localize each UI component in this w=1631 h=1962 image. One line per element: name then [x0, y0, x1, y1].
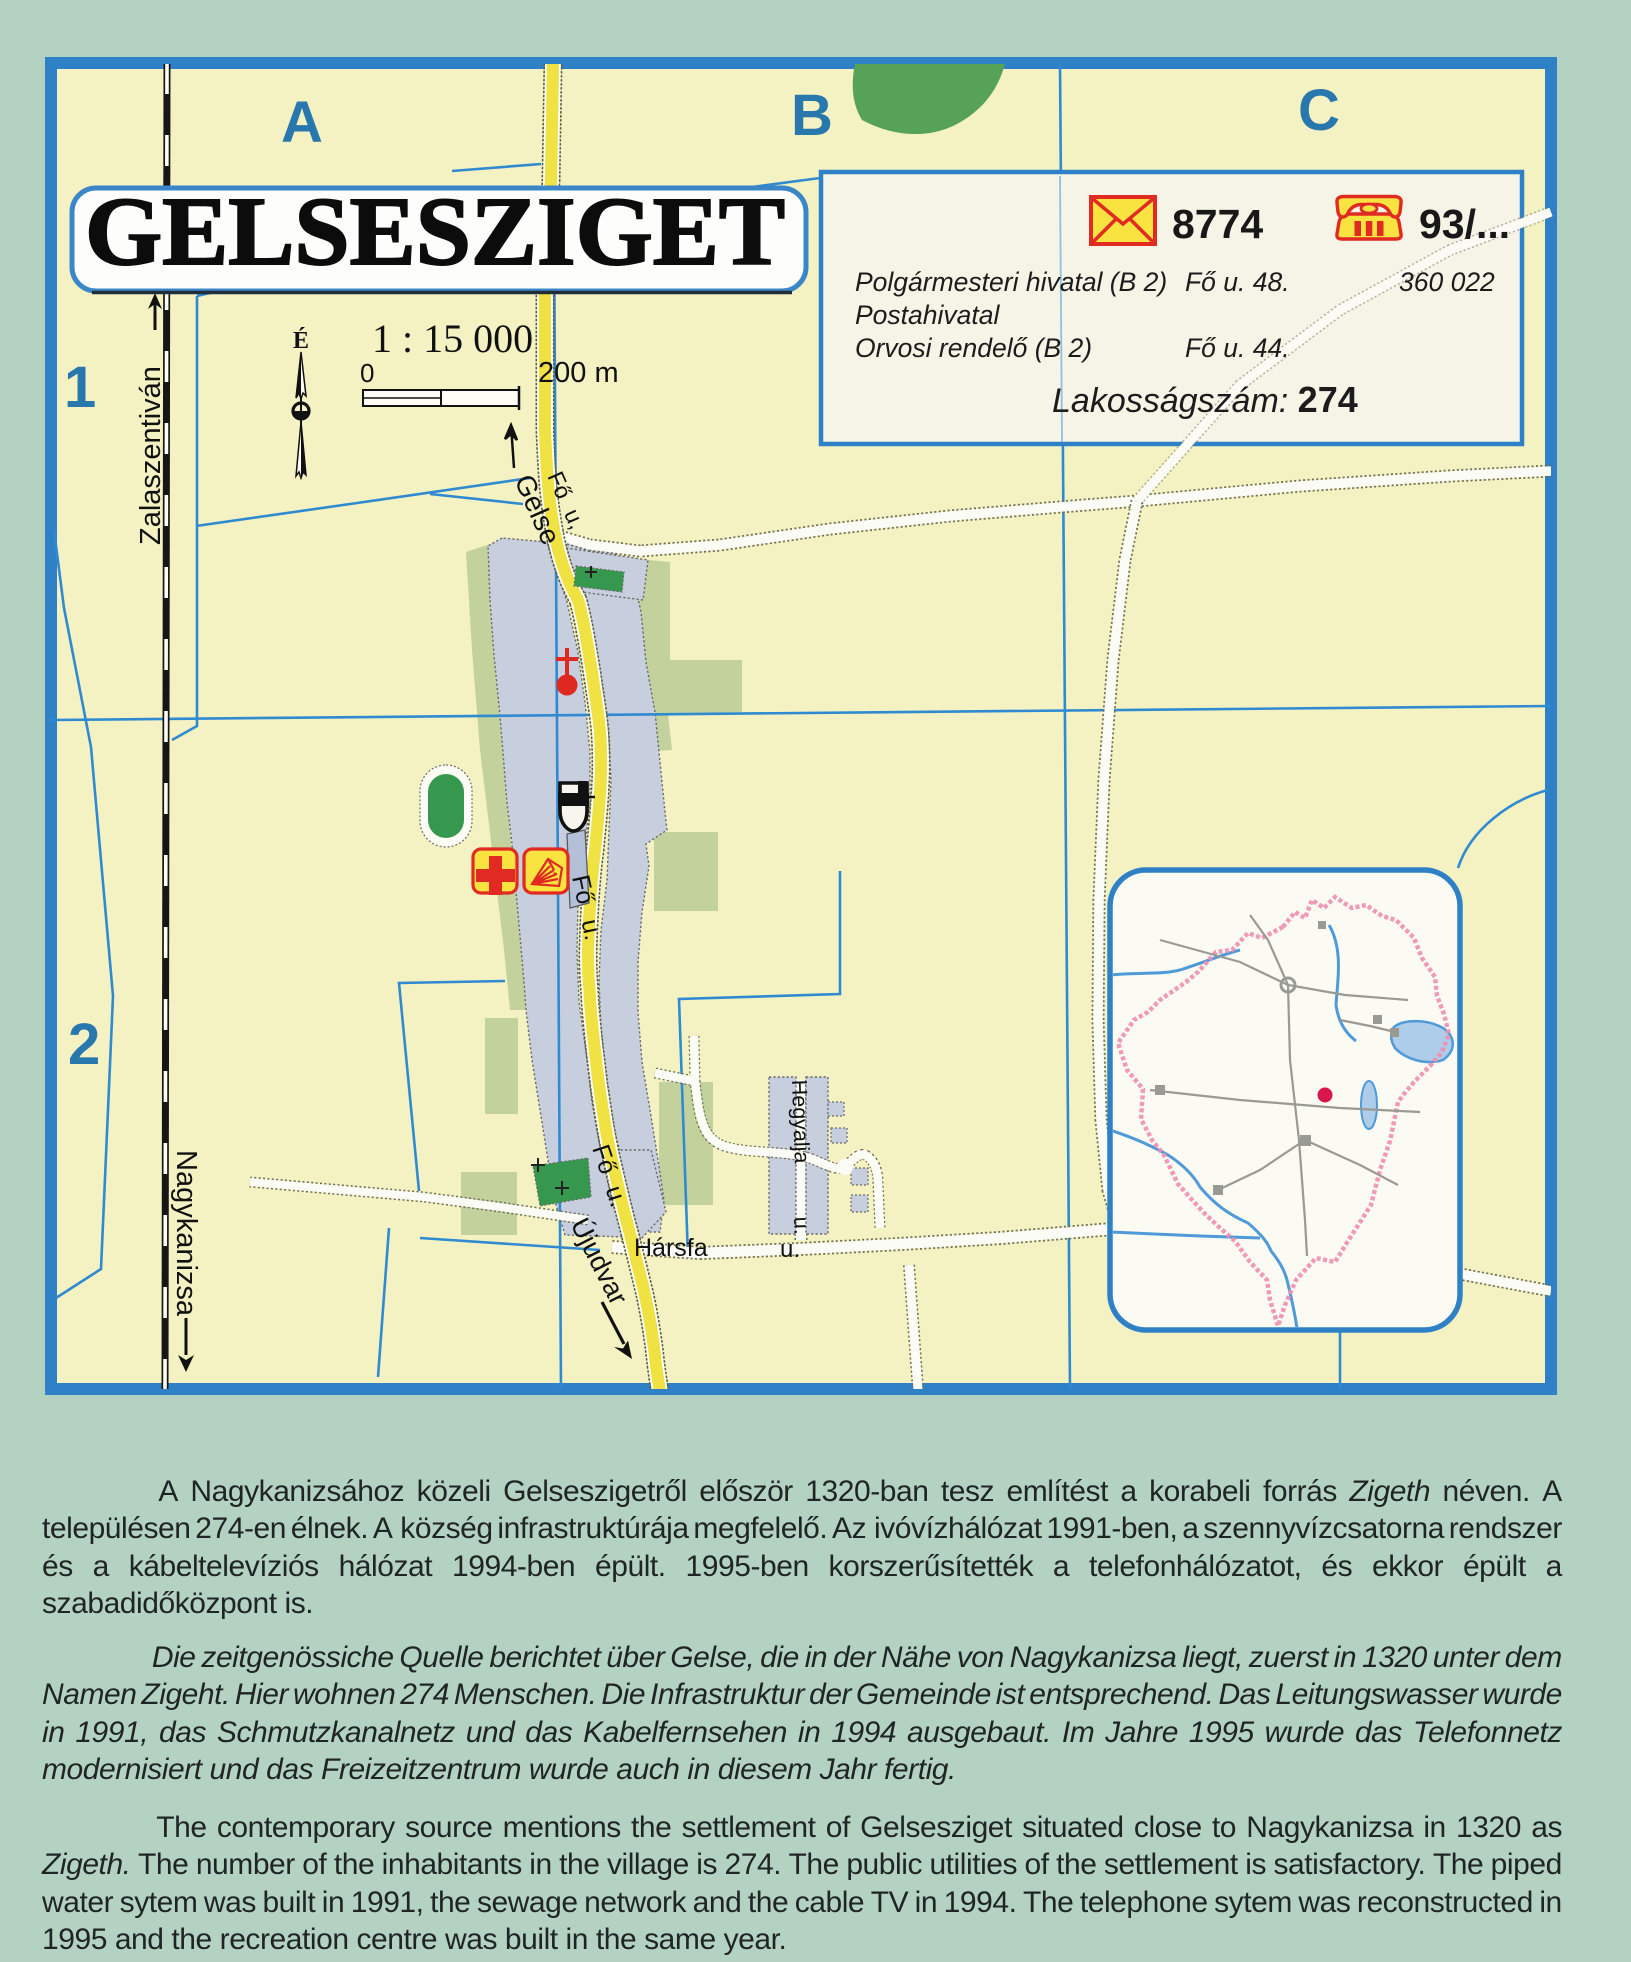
svg-text:GELSESZIGET: GELSESZIGET	[85, 178, 785, 285]
svg-text:A: A	[281, 90, 323, 155]
svg-text:8774: 8774	[1172, 201, 1263, 247]
svg-text:Hegyalja: Hegyalja	[787, 1079, 814, 1163]
svg-text:Polgármesteri hivatal (B 2): Polgármesteri hivatal (B 2)	[855, 267, 1167, 297]
svg-text:B: B	[791, 83, 833, 148]
svg-text:Fő u. 48.: Fő u. 48.	[1185, 267, 1290, 297]
svg-text:u.: u.	[789, 1216, 814, 1235]
svg-text:Lakosságszám: 274: Lakosságszám: 274	[1052, 379, 1358, 420]
svg-text:C: C	[1298, 78, 1340, 143]
svg-text:u.: u.	[780, 1236, 800, 1263]
svg-text:0: 0	[360, 358, 374, 388]
svg-text:1: 1	[64, 355, 96, 420]
svg-text:1 : 15 000: 1 : 15 000	[372, 316, 533, 361]
svg-text:2: 2	[68, 1012, 100, 1077]
svg-text:Zalaszentiván: Zalaszentiván	[135, 366, 167, 545]
svg-text:360 022: 360 022	[1399, 267, 1495, 297]
svg-text:Orvosi rendelő (B 2): Orvosi rendelő (B 2)	[855, 333, 1092, 363]
svg-text:Postahivatal: Postahivatal	[855, 300, 1000, 330]
svg-text:É: É	[293, 328, 309, 354]
svg-text:Nagykanizsa: Nagykanizsa	[170, 1150, 202, 1317]
svg-text:Hársfa: Hársfa	[634, 1234, 708, 1262]
svg-text:93/...: 93/...	[1419, 201, 1510, 247]
svg-text:200 m: 200 m	[538, 357, 619, 389]
svg-text:Fő u. 44.: Fő u. 44.	[1185, 333, 1290, 363]
